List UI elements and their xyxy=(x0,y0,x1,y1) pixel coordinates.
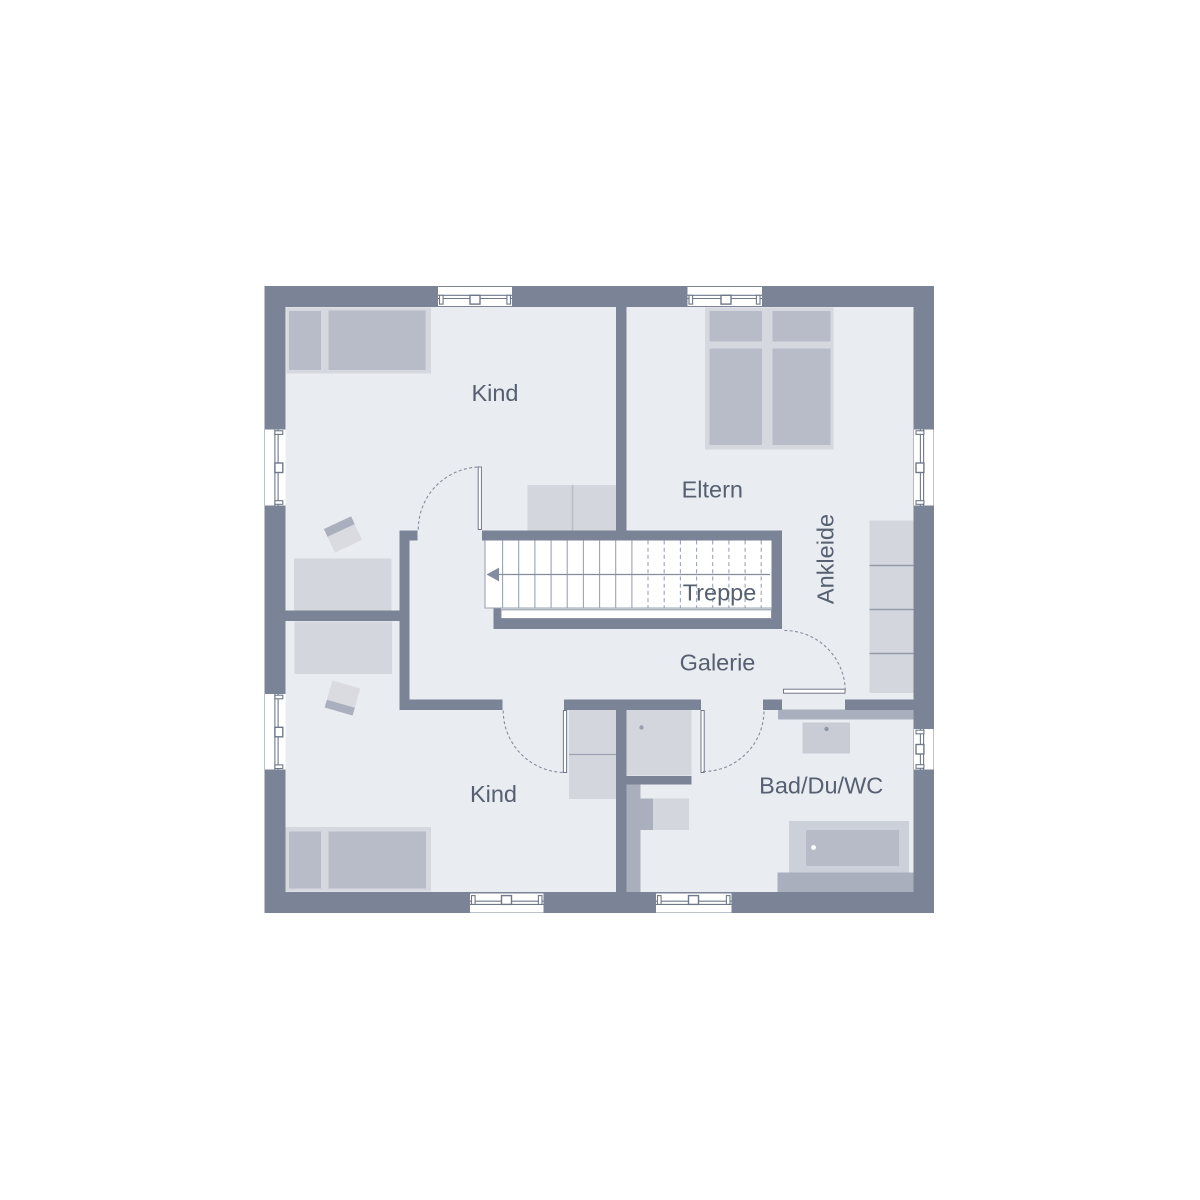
svg-text:Ankleide: Ankleide xyxy=(813,514,839,604)
svg-text:Galerie: Galerie xyxy=(680,650,756,676)
svg-text:Treppe: Treppe xyxy=(683,580,757,606)
svg-text:Bad/Du/WC: Bad/Du/WC xyxy=(759,773,883,799)
svg-text:Eltern: Eltern xyxy=(682,477,743,503)
svg-text:Kind: Kind xyxy=(471,380,518,406)
svg-text:Kind: Kind xyxy=(470,781,517,807)
